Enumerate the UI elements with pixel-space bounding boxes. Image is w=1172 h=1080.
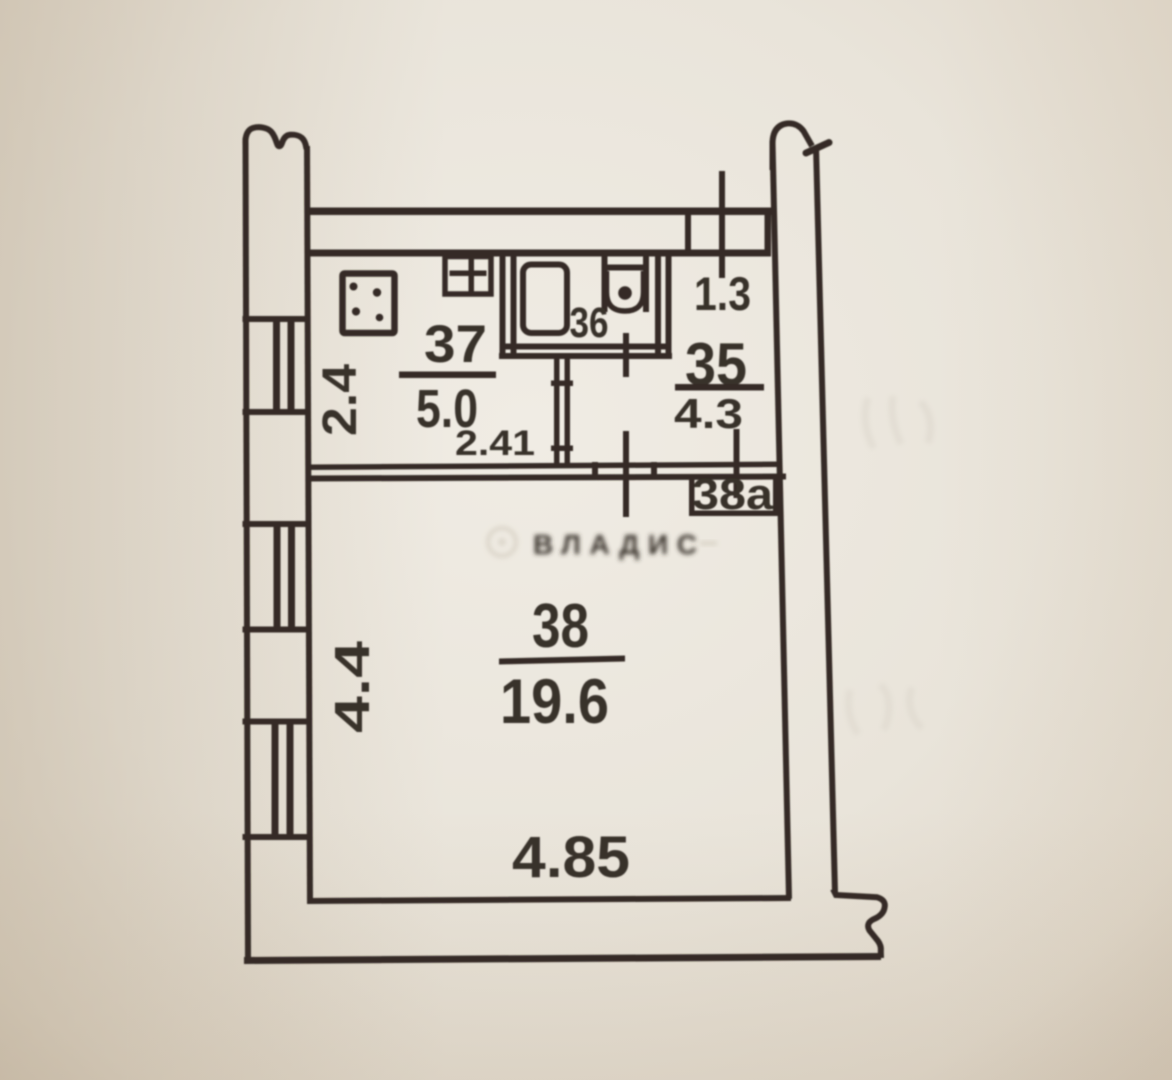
svg-text:19.6: 19.6 [500,667,609,737]
svg-text:4.4: 4.4 [326,641,380,733]
svg-text:2.4: 2.4 [314,364,367,436]
svg-text:38а: 38а [692,470,774,519]
svg-text:36: 36 [570,299,609,347]
svg-text:37: 37 [424,315,487,374]
svg-text:4.3: 4.3 [674,390,743,437]
svg-text:2.41: 2.41 [455,424,535,463]
svg-text:1.3: 1.3 [694,267,751,320]
svg-text:38: 38 [532,592,589,661]
svg-text:4.85: 4.85 [512,825,630,890]
